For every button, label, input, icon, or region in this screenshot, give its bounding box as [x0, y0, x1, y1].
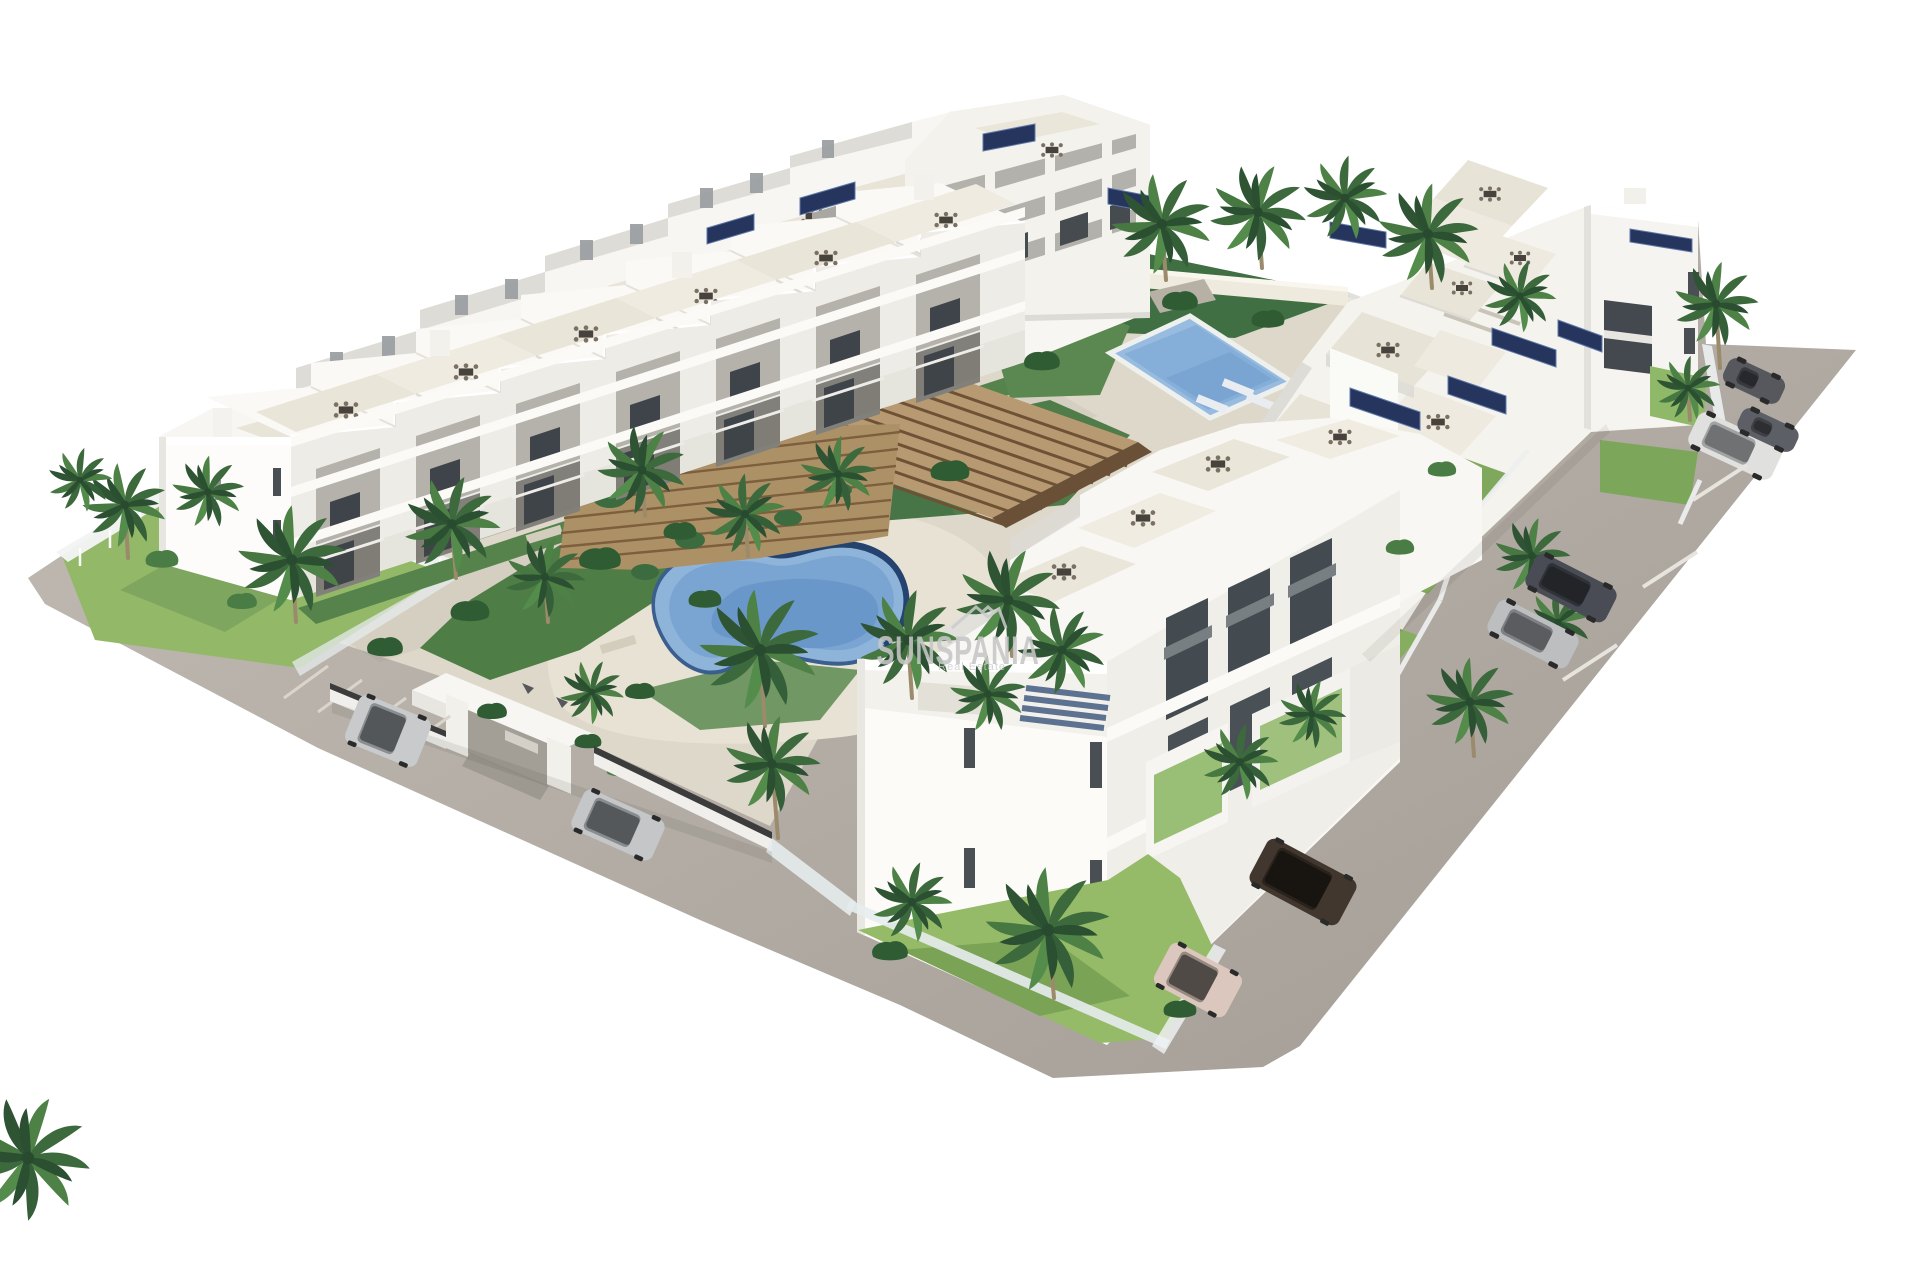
svg-text:Real Estate: Real Estate [938, 661, 1006, 673]
